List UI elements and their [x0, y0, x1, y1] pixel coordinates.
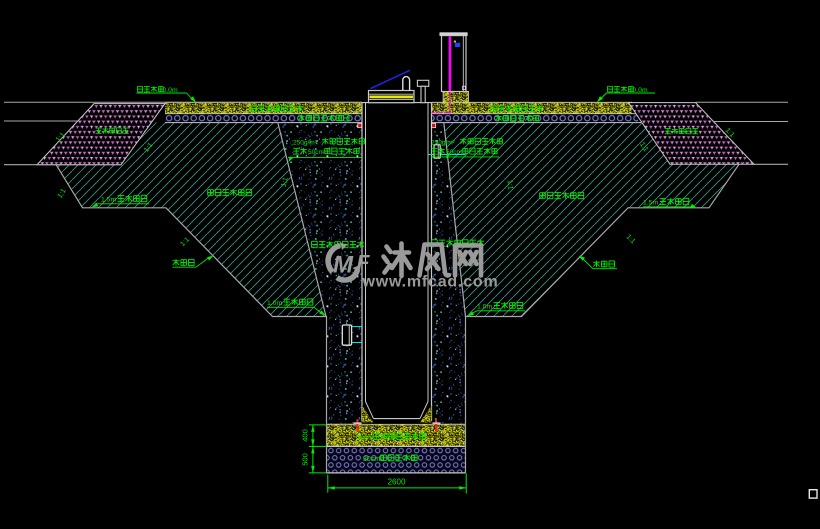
svg-text:1.5m: 1.5m: [643, 200, 658, 207]
svg-text:1:1: 1:1: [506, 180, 514, 191]
svg-text:M: M: [333, 252, 354, 279]
svg-text:250g/m²: 250g/m²: [431, 140, 456, 147]
svg-text:F: F: [357, 252, 371, 275]
svg-text:30cm: 30cm: [363, 456, 380, 463]
svg-text:1.0m: 1.0m: [267, 300, 282, 307]
svg-text:1.5m: 1.5m: [101, 197, 116, 204]
svg-text:50cm: 50cm: [308, 149, 324, 156]
svg-text:1.0m: 1.0m: [477, 304, 492, 311]
svg-text:250g/m²: 250g/m²: [293, 140, 318, 147]
svg-text:www.mfcad.com: www.mfcad.com: [361, 274, 498, 291]
svg-text:2600: 2600: [388, 478, 406, 487]
svg-text:400: 400: [301, 429, 310, 442]
svg-text:500: 500: [301, 453, 310, 466]
svg-text:40cm: 40cm: [356, 435, 373, 442]
